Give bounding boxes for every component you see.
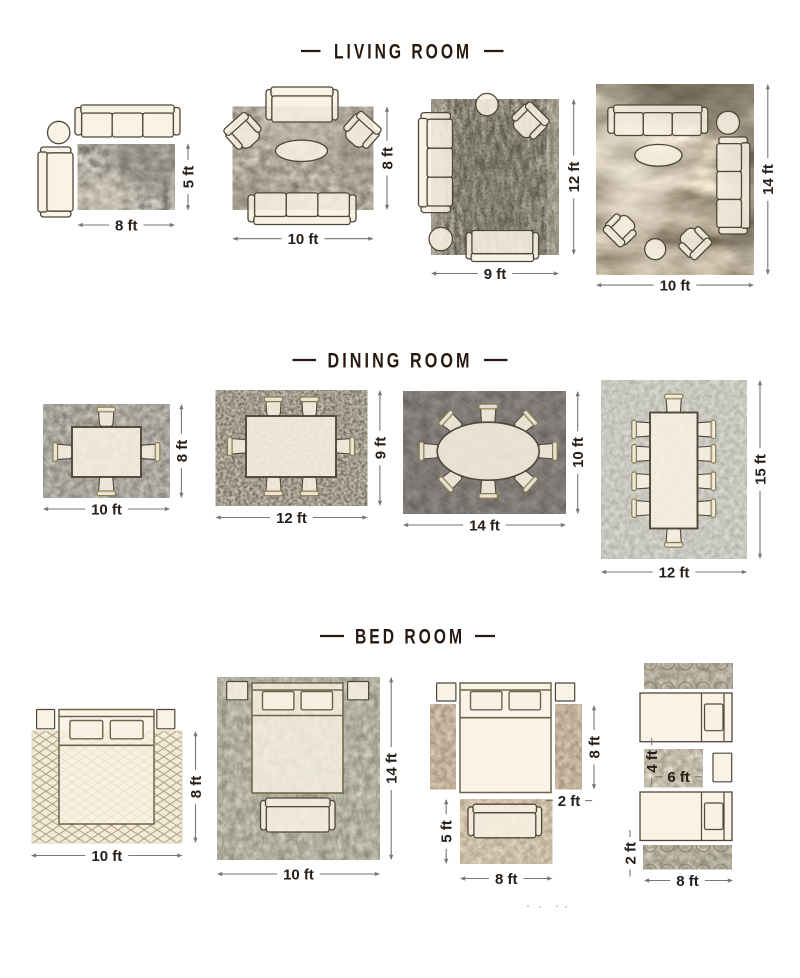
svg-text:2 ft: 2 ft bbox=[558, 793, 581, 810]
svg-text:8 ft: 8 ft bbox=[174, 440, 191, 463]
svg-text:5 ft: 5 ft bbox=[439, 820, 456, 843]
svg-text:8 ft: 8 ft bbox=[115, 217, 138, 234]
svg-text:2 ft: 2 ft bbox=[622, 842, 639, 865]
svg-text:12 ft: 12 ft bbox=[566, 162, 583, 193]
svg-text:9 ft: 9 ft bbox=[484, 266, 507, 283]
svg-text:DINING ROOM: DINING ROOM bbox=[328, 350, 473, 373]
svg-text:10 ft: 10 ft bbox=[288, 231, 319, 248]
svg-text:10 ft: 10 ft bbox=[660, 278, 691, 295]
svg-text:9 ft: 9 ft bbox=[372, 437, 389, 460]
svg-text:12 ft: 12 ft bbox=[659, 564, 690, 581]
svg-text:8 ft: 8 ft bbox=[676, 873, 699, 890]
svg-text:5 ft: 5 ft bbox=[180, 166, 197, 189]
svg-text:10 ft: 10 ft bbox=[283, 866, 314, 883]
svg-text:LIVING ROOM: LIVING ROOM bbox=[334, 41, 472, 64]
svg-text:8 ft: 8 ft bbox=[495, 871, 518, 888]
svg-text:15 ft: 15 ft bbox=[752, 454, 769, 485]
svg-text:8 ft: 8 ft bbox=[379, 147, 396, 170]
svg-text:6 ft: 6 ft bbox=[667, 769, 690, 786]
svg-text:14 ft: 14 ft bbox=[384, 753, 401, 784]
svg-text:10 ft: 10 ft bbox=[91, 501, 122, 518]
svg-text:10 ft: 10 ft bbox=[91, 848, 122, 865]
svg-text:BED ROOM: BED ROOM bbox=[355, 626, 465, 649]
svg-text:8 ft: 8 ft bbox=[188, 776, 205, 799]
svg-text:10 ft: 10 ft bbox=[570, 437, 587, 468]
svg-text:14 ft: 14 ft bbox=[469, 517, 500, 534]
svg-text:12 ft: 12 ft bbox=[276, 510, 307, 527]
svg-text:14 ft: 14 ft bbox=[760, 164, 777, 195]
svg-text:8 ft: 8 ft bbox=[586, 736, 603, 759]
svg-text:4 ft: 4 ft bbox=[644, 750, 661, 773]
